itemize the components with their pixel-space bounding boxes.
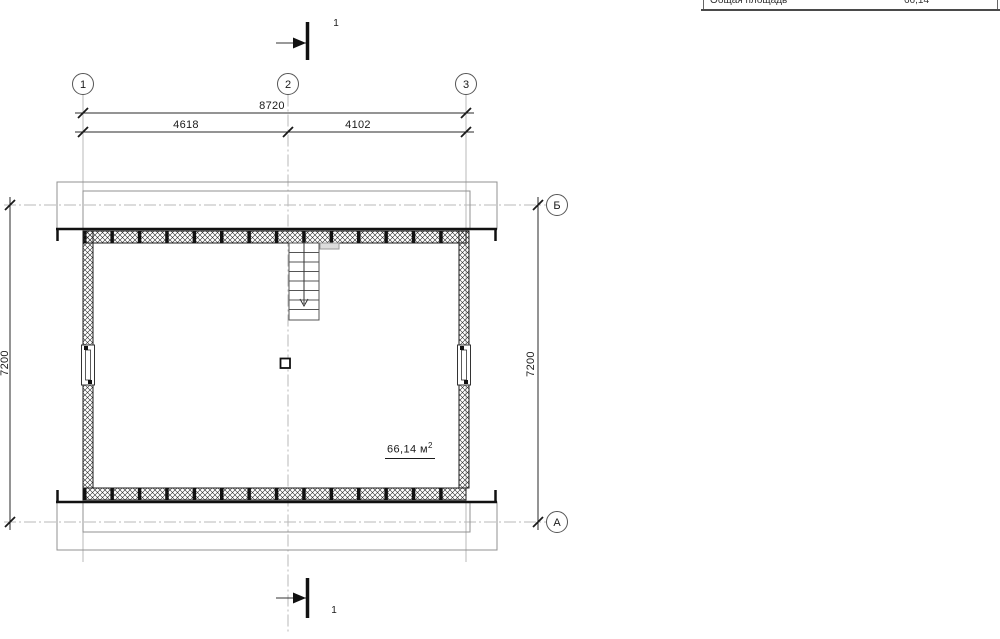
area-table-bottom-rule [701, 9, 1000, 11]
wall-top-studs [83, 231, 466, 243]
room-area-label: 66,14 м2 [385, 442, 435, 459]
column-center [281, 359, 291, 369]
drawing-viewport: 1 2 3 Б А 1 1 8720 4618 4102 7200 7200 6… [0, 0, 1000, 639]
dim-text-height-left: 7200 [0, 340, 11, 386]
axis-label-3: 3 [463, 79, 469, 91]
window-right [458, 345, 471, 385]
section-mark-bottom: 1 [276, 578, 337, 618]
dim-text-segment-left: 4618 [161, 119, 211, 131]
section-arrow-icon [293, 593, 306, 604]
axis-bubbles: 1 2 3 Б А [73, 74, 568, 533]
area-table-cell-name: Общая площадь [710, 0, 787, 6]
section-mark-top: 1 [276, 18, 339, 60]
roof-overhang-bottom [57, 502, 497, 550]
staircase [289, 243, 319, 320]
section-arrow-icon [293, 38, 306, 49]
dim-text-height-right: 7200 [525, 341, 537, 387]
area-table-cell-value: 66,14 [904, 0, 929, 6]
room-area-sup: 2 [428, 441, 433, 450]
dim-text-total: 8720 [247, 100, 297, 112]
section-label-bottom: 1 [331, 605, 337, 616]
window-left [82, 345, 95, 385]
dim-text-segment-right: 4102 [333, 119, 383, 131]
section-label-top: 1 [333, 18, 339, 29]
wall-stub [320, 243, 339, 249]
axis-label-1: 1 [80, 79, 86, 91]
walls [83, 231, 469, 500]
wall-bottom-studs [83, 488, 466, 500]
axis-label-2: 2 [285, 79, 291, 91]
room-area-value: 66,14 м [387, 444, 428, 456]
axis-label-a: А [553, 517, 561, 529]
floor-plan-canvas: 1 2 3 Б А 1 1 [0, 0, 1000, 639]
axis-label-b: Б [553, 200, 560, 212]
